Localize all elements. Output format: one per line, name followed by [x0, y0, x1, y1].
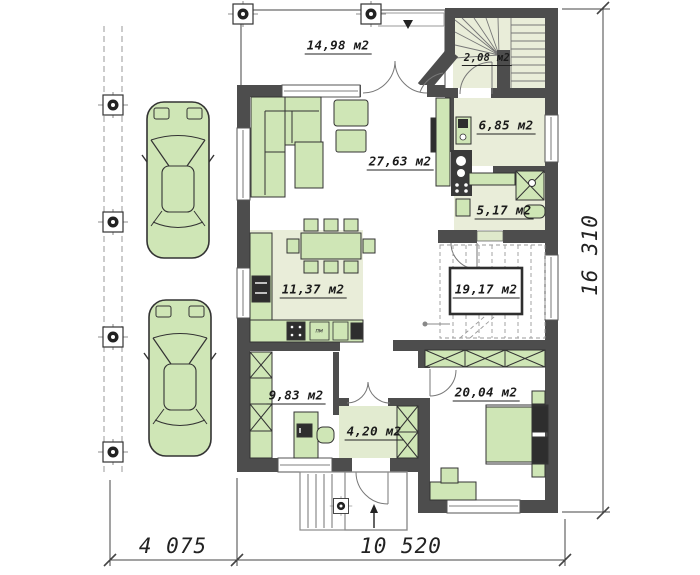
room-label-living-room: 27,63 м2 — [367, 154, 434, 169]
wall-hall-bedroom — [418, 340, 553, 350]
porch — [300, 472, 407, 530]
desk-computer — [297, 424, 312, 437]
column-marker — [330, 496, 353, 516]
vanity-counter — [469, 173, 515, 185]
door-threshold — [477, 231, 503, 241]
dimension-house-width: 10 520 — [360, 534, 442, 558]
room-label-bathroom: 5,17 м2 — [475, 203, 534, 218]
armchair — [334, 100, 368, 126]
floor-plan: 14,98 м2 2,08 м2 6,85 м2 27,63 м2 5,17 м… — [0, 0, 700, 575]
window-right-1 — [545, 115, 558, 162]
wall-stair-top — [445, 8, 558, 18]
column-marker — [228, 1, 258, 27]
front-door — [356, 472, 388, 504]
column-marker — [356, 1, 386, 27]
desk-chair — [317, 427, 334, 443]
chair — [324, 219, 338, 231]
dresser-top — [441, 468, 458, 483]
wall-stair-left — [445, 18, 455, 54]
tv-console — [436, 98, 450, 186]
window-left-2 — [237, 268, 250, 318]
washing-machine — [456, 199, 470, 216]
window-left-1 — [237, 128, 250, 200]
ottoman — [336, 130, 366, 152]
column-marker — [98, 439, 128, 465]
bed-mattress — [486, 407, 532, 462]
car-top-view — [142, 102, 214, 258]
column-marker — [98, 209, 128, 235]
dining-table — [301, 233, 361, 259]
chair — [287, 239, 299, 253]
column-marker — [98, 324, 128, 350]
carport — [98, 26, 216, 474]
window-bottom-bedroom — [447, 500, 520, 513]
dresser — [430, 482, 476, 500]
hob — [287, 322, 305, 340]
appliance-label-dishwasher: пм — [315, 328, 322, 335]
pillow — [532, 406, 548, 432]
fridge — [252, 276, 270, 302]
entrance-arrow — [370, 504, 378, 513]
office-furniture — [250, 352, 334, 458]
bathroom-door — [451, 243, 477, 269]
chair — [363, 239, 375, 253]
room-label-bedroom: 20,04 м2 — [453, 385, 520, 400]
chair — [344, 261, 358, 273]
dimension-carport-width: 4 075 — [139, 534, 207, 558]
wall-pillar — [393, 340, 418, 351]
room-label-entry: 4,20 м2 — [345, 424, 404, 439]
room-label-pantry: 6,85 м2 — [477, 118, 536, 133]
nightstand — [532, 391, 545, 404]
dimension-house-depth: 16 310 — [578, 214, 602, 296]
chair — [304, 261, 318, 273]
chair — [304, 219, 318, 231]
room-label-terrace: 14,98 м2 — [305, 38, 372, 53]
tv — [431, 118, 436, 152]
room-label-kitchen: 11,37 м2 — [280, 282, 347, 297]
window-right-2 — [545, 255, 558, 320]
pillow — [532, 437, 548, 463]
room-label-stair-lobby: 2,08 м2 — [462, 52, 512, 64]
office-wardrobe — [250, 352, 272, 458]
kitchen-counter-bottom — [250, 320, 363, 342]
wall-office-partition — [333, 352, 339, 415]
sink — [351, 323, 362, 339]
living-room-furniture — [251, 97, 450, 197]
room-label-hall: 19,17 м2 — [453, 282, 520, 297]
car-top-view — [144, 300, 216, 456]
room-label-office: 9,83 м2 — [267, 388, 326, 403]
chair — [324, 261, 338, 273]
column-marker — [98, 92, 128, 118]
chair — [344, 219, 358, 231]
nightstand — [532, 464, 545, 477]
coffee-table — [295, 142, 323, 188]
bedroom-furniture — [425, 350, 548, 500]
